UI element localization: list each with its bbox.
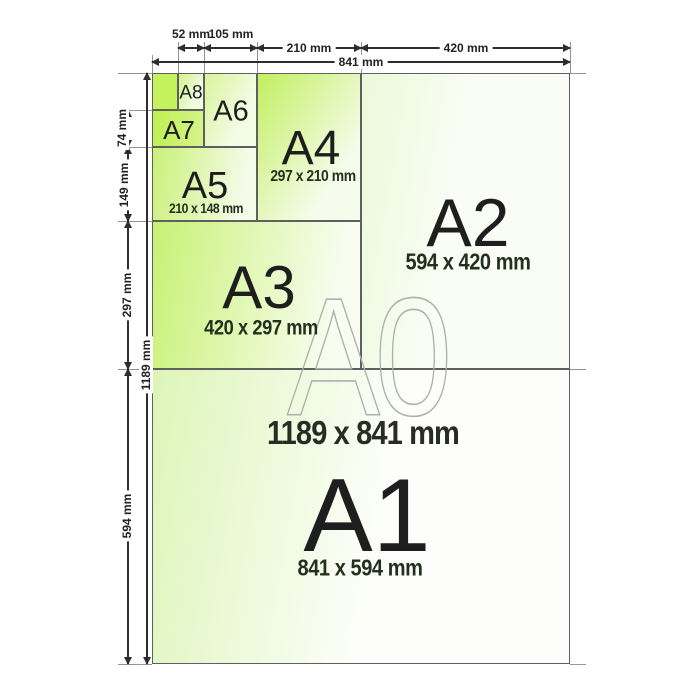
a3-size-label: 420 x 297 mm [204, 318, 318, 339]
extension-line [570, 369, 586, 370]
paper-sizes-diagram: 52 mm 105 mm 210 mm 420 mm 841 mm 74 mm … [0, 0, 700, 700]
a2-size-label: 594 x 420 mm [406, 251, 531, 274]
a4-size-label: 297 x 210 mm [270, 169, 355, 185]
dim-label-149mm: 149 mm [117, 160, 131, 211]
a7-label: A7 [163, 117, 195, 143]
a2-label: A2 [426, 189, 509, 257]
a5-size-label: 210 x 148 mm [169, 201, 243, 215]
dim-label-210mm: 210 mm [283, 41, 336, 55]
a4-label: A4 [282, 125, 341, 173]
dim-label-420mm: 420 mm [440, 41, 493, 55]
dim-arrow-105mm [204, 47, 257, 49]
dim-label-297mm: 297 mm [120, 270, 134, 321]
dim-label-841mm: 841 mm [335, 55, 388, 69]
a3-label: A3 [222, 258, 295, 318]
a1-label: A1 [303, 464, 430, 568]
extension-line [570, 664, 586, 665]
dim-label-52mm: 52 mm [172, 28, 210, 40]
dim-arrow-52mm [178, 47, 204, 49]
a0-size-label: 1189 x 841 mm [267, 414, 459, 452]
a1-size-label: 841 x 594 mm [298, 557, 423, 580]
dim-label-74mm: 74 mm [115, 106, 129, 150]
dim-label-594mm: 594 mm [120, 491, 134, 542]
extension-line [570, 73, 586, 74]
dim-label-1189mm: 1189 mm [139, 337, 153, 394]
a8-label: A8 [179, 84, 202, 103]
paper-residual-corner [152, 73, 178, 110]
a6-label: A6 [213, 98, 248, 127]
dim-label-105mm: 105 mm [209, 28, 254, 40]
